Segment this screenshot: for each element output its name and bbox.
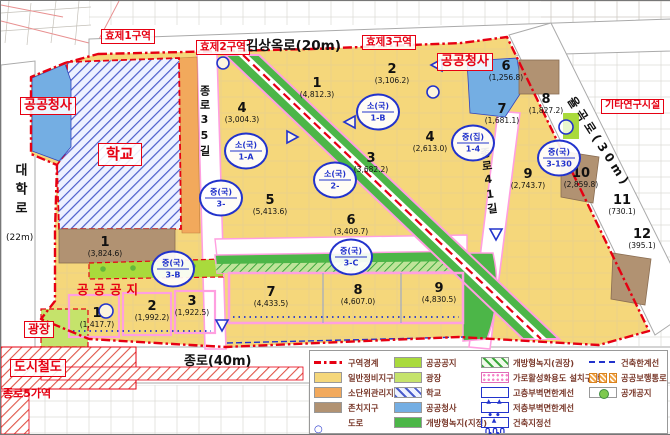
open-green-designated-swatch — [394, 417, 422, 428]
legend-item-label: 공개공지 — [621, 387, 652, 399]
legend-item-label: 개방형녹지(지정) — [426, 417, 487, 429]
block-label: 7(1,681.1) — [485, 103, 519, 125]
legend-item-label: 구역경계 — [348, 357, 379, 369]
plaza-swatch — [394, 372, 422, 383]
building-designation-line-swatch — [481, 417, 509, 428]
block-label: 6(1,256.8) — [489, 60, 523, 82]
unit-marker: 소(국)2- — [313, 162, 357, 199]
district-plan-map: 효제1구역 효제2구역 효제3구역 김상옥로(20m) 공공청사 공공청사 학교… — [0, 0, 670, 435]
block-label: 4(3,004.3) — [225, 102, 259, 124]
block-label: 1(4,812.3) — [300, 77, 334, 99]
street-activation-swatch — [481, 372, 509, 383]
road-label-daehak: 대학로 — [10, 163, 29, 220]
road-label-gimsangok: 김상옥로(20m) — [246, 34, 341, 54]
legend-item-label: 공공보행통로 — [621, 372, 667, 384]
general-district-swatch — [314, 372, 342, 383]
block-label: 6(3,409.7) — [334, 214, 368, 236]
block-label: 2(3,106.2) — [375, 63, 409, 85]
block-label: 12(395.1) — [628, 228, 655, 250]
legend-item-label: 존치지구 — [348, 402, 379, 414]
public-office-right-label: 공공청사 — [437, 53, 493, 71]
public-office-swatch — [394, 402, 422, 413]
unit-marker: 중(국)3-C — [329, 239, 373, 276]
legend-item-label: 건축지정선 — [513, 417, 551, 429]
legend-item-label: 저층부벽면한계선 — [513, 402, 574, 414]
legend-item-label: 고층부벽면한계선 — [513, 387, 574, 399]
road-label-daehak-width: (22m) — [6, 233, 33, 243]
legend-item-label: 학교 — [426, 387, 441, 399]
block-label: 2(1,992.2) — [135, 300, 169, 322]
school-swatch — [394, 387, 422, 398]
unit-marker: 중(국)3- — [199, 180, 243, 217]
upper-wall-limit-swatch — [481, 387, 509, 398]
open-space-label: 공공공지 — [77, 279, 143, 298]
unit-marker: 소(국)1-B — [356, 94, 400, 131]
public-walkway-swatch — [589, 372, 617, 383]
unit-marker: 중(국)3-B — [151, 251, 195, 288]
legend-item-label: 공공공지 — [426, 357, 457, 369]
block-label: 9(4,830.5) — [422, 282, 456, 304]
zone-label-3: 효제3구역 — [362, 35, 416, 50]
public-open-land-swatch — [394, 357, 422, 368]
unit-marker: 중(국)3-130 — [537, 140, 581, 177]
building-limit-line-swatch — [589, 357, 617, 368]
unit-marker: 소(국)1-A — [224, 133, 268, 170]
zone-label-2: 효제2구역 — [196, 40, 250, 55]
preserve-district-swatch — [314, 402, 342, 413]
road-label-jongno: 종로(40m) — [184, 350, 251, 369]
plaza-label: 광장 — [24, 321, 54, 338]
legend-item-label: 건축한계선 — [621, 357, 659, 369]
block-label: 1(1,417.7) — [80, 307, 114, 329]
legend-item-label: 개방형녹지(권장) — [513, 357, 574, 369]
legend: 구역경계일반정비지구소단위관리지구존치지구도로공공공지광장학교공공청사개방형녹지… — [309, 350, 668, 434]
other-research-label: 기타연구시설 — [601, 99, 664, 114]
legend-item-label: 공공청사 — [426, 402, 457, 414]
road-label-jongno35: 종로35길 — [196, 85, 212, 159]
public-open-space-swatch — [589, 387, 617, 398]
station-label: 종로5가역 — [3, 385, 51, 401]
legend-item-label: 일반정비지구 — [348, 372, 394, 384]
block-label: 7(4,433.5) — [254, 286, 288, 308]
legend-item-label: 도로 — [348, 417, 363, 429]
block-label: 1(3,824.6) — [88, 236, 122, 258]
unit-marker: 중(집)1-4 — [451, 125, 495, 162]
block-label: 11(730.1) — [608, 194, 635, 216]
open-green-recommended-swatch — [481, 357, 509, 368]
block-label: 8(1,827.2) — [529, 93, 563, 115]
small-unit-district-swatch — [314, 387, 342, 398]
legend-item-label: 광장 — [426, 372, 441, 384]
block-label: 5(5,413.6) — [253, 194, 287, 216]
block-label: 8(4,607.0) — [341, 284, 375, 306]
legend-item-label: 가로활성화용도 설치구간 — [513, 372, 600, 384]
block-label: 3(1,922.5) — [175, 295, 209, 317]
lower-wall-limit-swatch — [481, 402, 509, 413]
public-office-left-label: 공공청사 — [20, 97, 76, 115]
block-label: 4(2,613.0) — [413, 131, 447, 153]
zone-boundary-swatch — [314, 357, 342, 368]
block-label: 9(2,743.7) — [511, 168, 545, 190]
block-label: 3(3,682.2) — [354, 152, 388, 174]
zone-label-1: 효제1구역 — [101, 29, 155, 44]
subway-label: 도시철도 — [10, 359, 66, 377]
school-label: 학교 — [98, 143, 142, 166]
road-swatch — [314, 417, 342, 428]
